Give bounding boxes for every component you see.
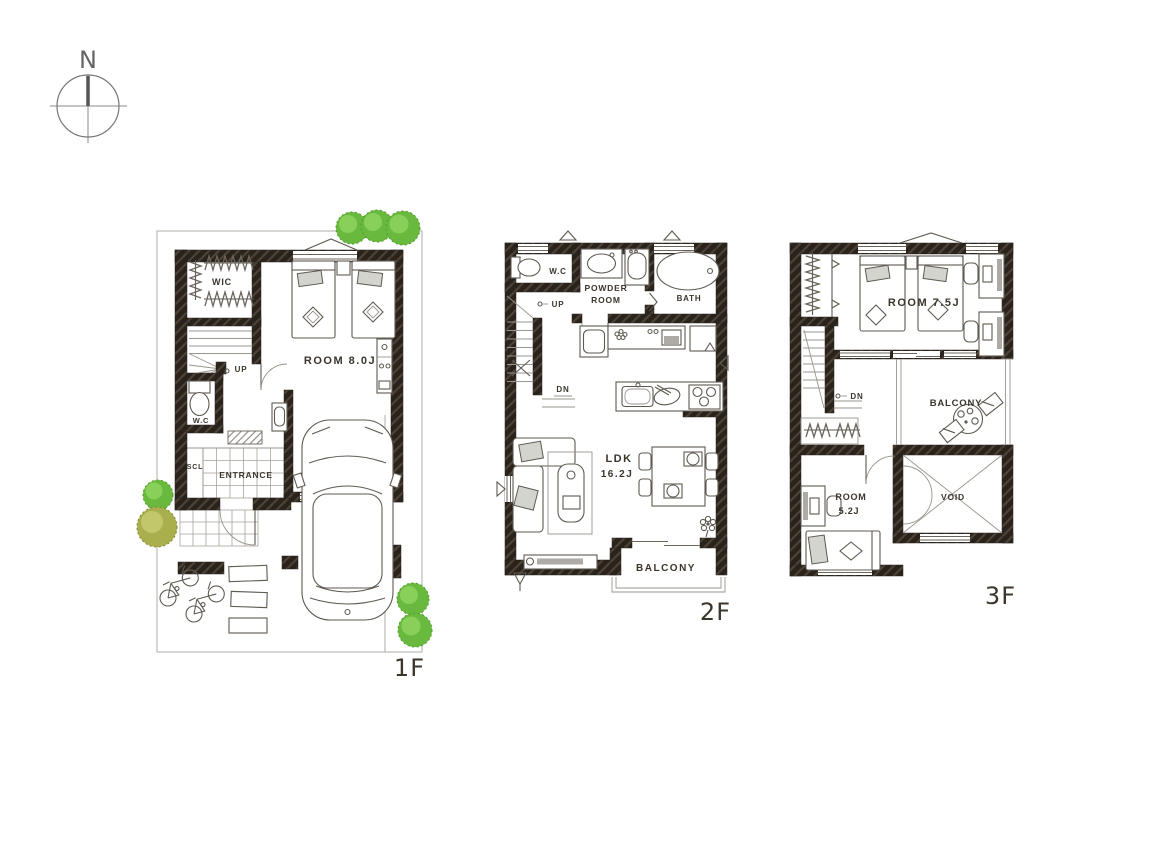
bicycle-icon: [179, 579, 227, 625]
powder-room: POWDER ROOM: [581, 249, 649, 305]
door-arc: [903, 466, 932, 495]
desk-icon: [964, 312, 1004, 356]
room-75j-label: ROOM 7.5J: [888, 297, 960, 309]
desk-icon: [964, 254, 1004, 298]
bathtub-icon: [657, 252, 719, 290]
coffee-table-icon: [558, 464, 584, 522]
door-arc: [903, 495, 932, 524]
bed-icon: [806, 531, 880, 570]
floor-plan-sheet: N: [0, 0, 1150, 865]
room-wc-2f: W.C: [511, 257, 567, 278]
void-label: VOID: [941, 492, 965, 502]
scl-label: SCL: [187, 464, 203, 471]
bathroom: BATH: [650, 252, 720, 311]
tv-board-icon: [524, 555, 597, 569]
chair-icon: [706, 479, 718, 496]
sink-icon: [580, 326, 608, 357]
floor-label-2f: 2F: [700, 598, 731, 626]
bed-icon: [860, 256, 905, 331]
room-8j-label: ROOM 8.0J: [304, 355, 376, 367]
floor-label-1f: 1F: [394, 654, 425, 682]
room-wc-1f: W.C: [189, 381, 210, 425]
chair-icon: [964, 263, 978, 284]
room-52j: ROOM 5.2J: [801, 486, 880, 570]
tree-icon: [386, 211, 420, 245]
bath-label: BATH: [677, 294, 702, 303]
window-mark-icon: [497, 482, 505, 496]
chair-icon: [706, 453, 718, 470]
up-label-1f: UP: [235, 365, 248, 374]
room-8j: ROOM 8.0J: [292, 261, 395, 393]
entrance-label: ENTRANCE: [219, 470, 273, 480]
nightstand-icon: [337, 261, 350, 275]
floor-plan-drawing: N: [0, 0, 1150, 865]
north-label: N: [79, 46, 97, 74]
toilet-icon: [189, 381, 210, 393]
powder-room-label-2: ROOM: [591, 295, 621, 305]
floor-plan-3f: ROOM 7.5J DN: [790, 233, 1016, 610]
vent-triangle-icon: [664, 231, 680, 240]
room-52j-label-2: 5.2J: [839, 506, 860, 516]
wc-label-2f: W.C: [549, 267, 567, 276]
bed-icon: [292, 261, 335, 338]
balcony-label-3f: BALCONY: [930, 398, 983, 409]
plant-icon: [700, 516, 715, 537]
ldk-size-label: 16.2J: [601, 469, 634, 480]
dining-table-icon: [639, 447, 718, 506]
room-52j-label-1: ROOM: [835, 492, 866, 502]
room-wic: WIC: [190, 256, 254, 306]
up-label-2f: UP: [552, 300, 565, 309]
closet-3f: [806, 253, 839, 317]
tree-icon: [143, 480, 173, 510]
bed-icon: [918, 256, 963, 331]
floor-label-3f: 3F: [985, 582, 1016, 610]
chair-icon: [964, 321, 978, 342]
dn-label-3f: DN: [850, 392, 863, 401]
balcony-label-2f: BALCONY: [636, 563, 696, 574]
kitchen: [580, 326, 723, 411]
washing-machine-icon: [625, 249, 649, 285]
wc-label-1f: W.C: [193, 416, 210, 425]
approach-tiles: [180, 510, 258, 546]
wic-label: WIC: [212, 277, 232, 287]
nightstand-icon: [906, 256, 917, 269]
fridge-icon: [690, 326, 716, 351]
floor-plan-1f: WIC UP W.C SCL ENTRANCE: [153, 231, 425, 682]
closet-cabinet-icon: [377, 339, 392, 393]
doormat-icon: [228, 431, 262, 444]
tree-icon: [398, 613, 432, 647]
floor-plan-2f: UP DN W.C POWDER ROOM: [497, 231, 731, 626]
car-icon: [293, 420, 401, 620]
stepping-stones: [229, 565, 268, 633]
folding-door-icon: [832, 300, 839, 308]
powder-room-label-1: POWDER: [584, 283, 627, 293]
bed-icon: [352, 261, 395, 338]
ldk-label: LDK: [605, 453, 632, 465]
balcony-3f: BALCONY: [930, 392, 1003, 442]
gable-vent-icon: [900, 233, 962, 243]
chair-icon: [639, 453, 651, 470]
compass-icon: N: [50, 46, 127, 143]
entrance-door-arc: [220, 510, 255, 545]
closet-hanger-icon: [190, 262, 201, 298]
void-area: VOID: [903, 455, 1002, 533]
dn-label-2f: DN: [556, 385, 569, 394]
door-arc: [866, 456, 894, 484]
folding-door-icon: [832, 260, 839, 268]
tree-icon: [397, 583, 429, 615]
room-75j: ROOM 7.5J: [860, 254, 1004, 356]
vent-triangle-icon: [560, 231, 576, 240]
tree-icon: [137, 507, 177, 547]
door-arc: [261, 364, 287, 390]
chair-icon: [639, 479, 651, 496]
